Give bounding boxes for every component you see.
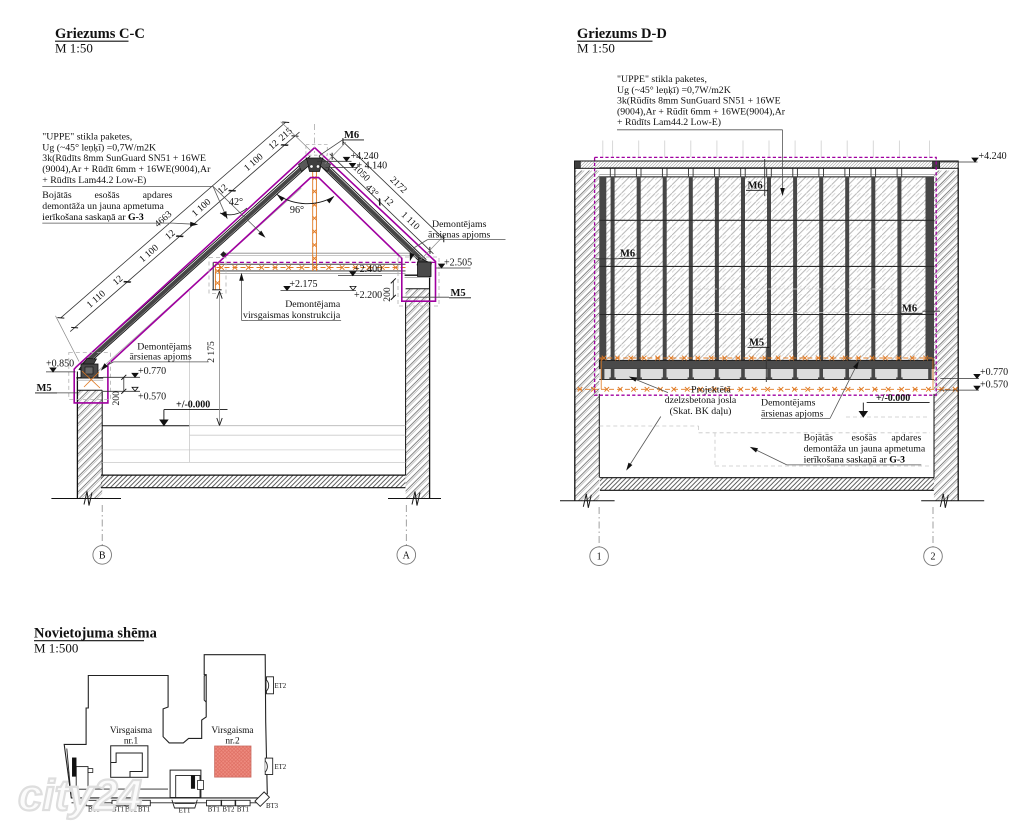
svg-text:ārsienas apjoms: ārsienas apjoms	[761, 408, 823, 419]
svg-text:ārsienas apjoms: ārsienas apjoms	[129, 352, 191, 363]
svg-text:+2.175: +2.175	[289, 279, 317, 290]
svg-text:ET2: ET2	[275, 683, 287, 690]
svg-text:(9004),Ar + Rūdīt 6mm + 16WE(9: (9004),Ar + Rūdīt 6mm + 16WE(9004),Ar	[617, 106, 786, 117]
svg-text:+0.770: +0.770	[138, 366, 166, 377]
svg-text:+2.505: +2.505	[444, 257, 472, 268]
svg-text:nr.1: nr.1	[124, 737, 139, 747]
svg-text:Virsgaisma: Virsgaisma	[211, 726, 254, 736]
svg-text:Ug (~45° leņķī) =0,7W/m2K: Ug (~45° leņķī) =0,7W/m2K	[42, 142, 156, 153]
svg-text:ierīkošana saskaņā ar G-3: ierīkošana saskaņā ar G-3	[804, 455, 906, 466]
svg-text:apdares: apdares	[891, 433, 921, 444]
svg-text:A: A	[403, 550, 411, 561]
svg-text:M5: M5	[749, 337, 764, 348]
svg-text:(9004),Ar + Rūdīt 6mm + 16WE(9: (9004),Ar + Rūdīt 6mm + 16WE(9004),Ar	[42, 164, 211, 175]
svg-text:Novietojuma shēma: Novietojuma shēma	[34, 626, 158, 642]
svg-text:ET2: ET2	[275, 764, 287, 771]
svg-text:M5: M5	[37, 383, 52, 394]
svg-text:"UPPE" stikla paketes,: "UPPE" stikla paketes,	[42, 132, 132, 143]
svg-text:esošās: esošās	[851, 433, 876, 444]
svg-text:+ Rūdīts Lam44.2 Low-E): + Rūdīts Lam44.2 Low-E)	[42, 175, 146, 186]
svg-text:+4.240: +4.240	[979, 151, 1007, 162]
svg-text:1: 1	[597, 552, 602, 563]
svg-text:BT2: BT2	[222, 807, 235, 814]
svg-text:BT3: BT3	[266, 803, 279, 810]
svg-text:+ Rūdīts Lam44.2 Low-E): + Rūdīts Lam44.2 Low-E)	[617, 117, 721, 128]
svg-text:virsgaismas konstrukcija: virsgaismas konstrukcija	[243, 310, 341, 321]
svg-text:+0.570: +0.570	[980, 379, 1008, 390]
svg-text:demontāža un jauna apmetuma: demontāža un jauna apmetuma	[42, 201, 164, 212]
svg-text:3k(Rūdīts 8mm SunGuard SN51 +: 3k(Rūdīts 8mm SunGuard SN51 + 16WE	[617, 96, 781, 107]
svg-text:+0.770: +0.770	[980, 367, 1008, 378]
svg-text:Demontējams: Demontējams	[761, 397, 816, 408]
svg-text:nr.2: nr.2	[225, 737, 240, 747]
svg-text:apdares: apdares	[143, 190, 173, 201]
svg-text:Virsgaisma: Virsgaisma	[110, 726, 153, 736]
svg-text:+0.570: +0.570	[138, 391, 166, 402]
svg-text:Demontējama: Demontējama	[285, 299, 341, 310]
svg-text:Projektētā: Projektētā	[691, 384, 731, 395]
svg-text:M 1:500: M 1:500	[34, 641, 78, 656]
svg-text:+/-0.000: +/-0.000	[176, 400, 210, 411]
svg-text:ierīkošana saskaņā ar G-3: ierīkošana saskaņā ar G-3	[42, 212, 144, 223]
svg-text:M6: M6	[902, 303, 917, 314]
svg-text:M 1:50: M 1:50	[577, 41, 615, 56]
svg-text:M6: M6	[748, 180, 763, 191]
svg-text:esošās: esošās	[94, 190, 119, 201]
svg-text:42°: 42°	[229, 197, 243, 208]
svg-text:BT1: BT1	[237, 807, 249, 814]
svg-text:M6: M6	[344, 130, 359, 141]
svg-text:demontāža un jauna apmetuma: demontāža un jauna apmetuma	[804, 444, 926, 455]
svg-text:2 175: 2 175	[206, 341, 217, 363]
svg-text:ET1: ET1	[179, 807, 191, 814]
svg-text:M 1:50: M 1:50	[55, 41, 93, 56]
svg-text:96°: 96°	[290, 205, 304, 216]
svg-text:200: 200	[382, 287, 393, 302]
svg-text:ārsienas apjoms: ārsienas apjoms	[428, 229, 490, 240]
svg-text:+ 4.140: + 4.140	[357, 161, 388, 172]
svg-text:M5: M5	[451, 288, 466, 299]
svg-text:+0.850: +0.850	[46, 359, 74, 370]
svg-text:(Skat. BK daļu): (Skat. BK daļu)	[670, 406, 732, 417]
svg-text:+2.400: +2.400	[354, 264, 382, 275]
svg-text:200: 200	[111, 391, 122, 406]
svg-text:+2.200: +2.200	[354, 290, 382, 301]
svg-text:BT1: BT1	[208, 807, 220, 814]
svg-text:Bojātās: Bojātās	[804, 433, 834, 444]
svg-text:city24: city24	[18, 771, 142, 820]
svg-text:dzelzsbetona josla: dzelzsbetona josla	[665, 395, 737, 406]
svg-text:Bojātās: Bojātās	[42, 190, 72, 201]
svg-text:M6: M6	[620, 248, 635, 259]
svg-text:3k(Rūdīts 8mm SunGuard SN51 +: 3k(Rūdīts 8mm SunGuard SN51 + 16WE	[42, 153, 206, 164]
svg-text:2: 2	[931, 552, 936, 563]
svg-text:Ug (~45° leņķī) =0,7W/m2K: Ug (~45° leņķī) =0,7W/m2K	[617, 85, 731, 96]
svg-text:"UPPE" stikla paketes,: "UPPE" stikla paketes,	[617, 74, 707, 85]
svg-text:B: B	[99, 550, 106, 561]
